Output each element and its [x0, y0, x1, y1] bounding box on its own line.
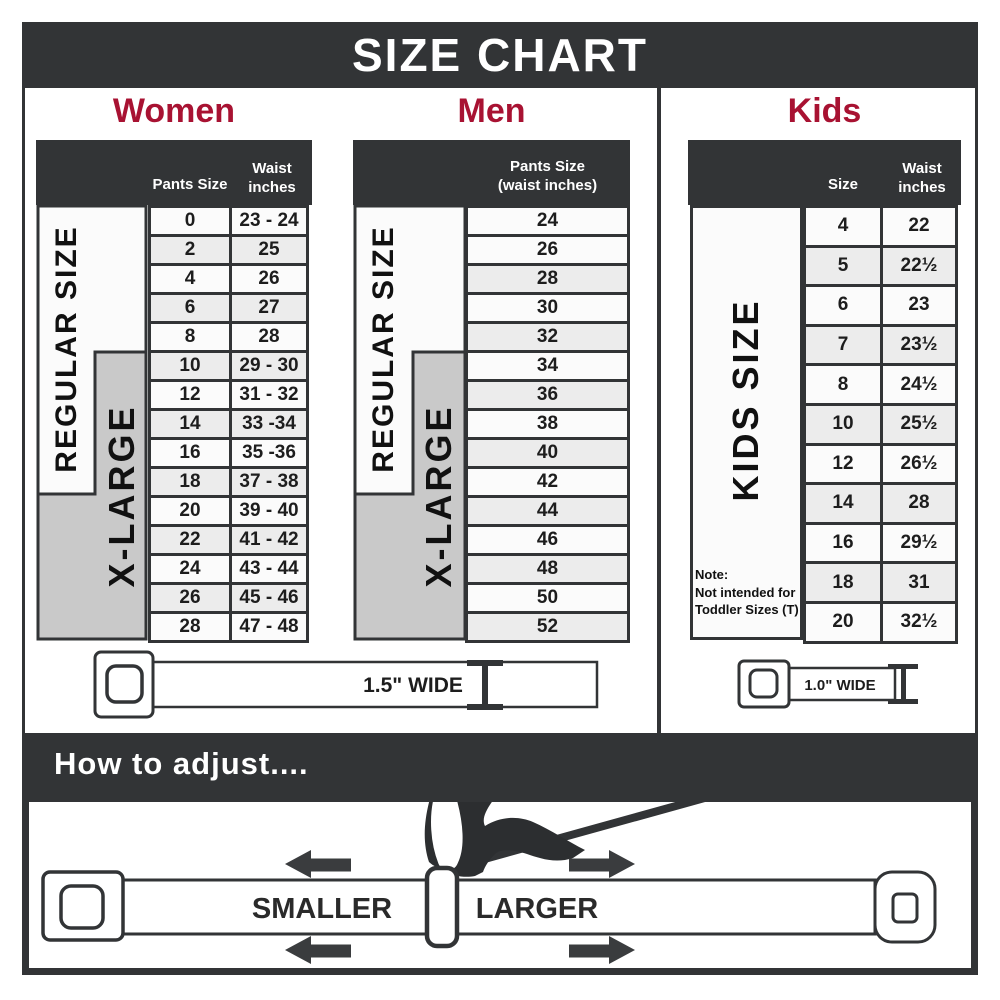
- women-pants-size-cell: 16: [148, 437, 232, 469]
- men-table: 24 26 28 30 32 34 36: [465, 205, 630, 643]
- kids-waist-cell: 22: [880, 205, 958, 248]
- kids-size-cell: 16: [803, 522, 883, 565]
- women-table-row: 24 43 - 44: [148, 553, 312, 585]
- men-table-row: 24: [465, 205, 630, 237]
- men-section-title: Men: [353, 92, 630, 134]
- arrow-left-icon: [285, 850, 351, 878]
- kids-table-row: 7 23½: [803, 324, 961, 367]
- men-pants-size-cell: 36: [465, 379, 630, 411]
- kids-waist-cell: 28: [880, 482, 958, 525]
- women-waist-cell: 43 - 44: [229, 553, 309, 585]
- kids-belt-illustration: 1.0" WIDE: [735, 657, 930, 713]
- men-table-row: 30: [465, 292, 630, 324]
- kids-waist-cell: 32½: [880, 601, 958, 644]
- kids-size-cell: 6: [803, 284, 883, 327]
- kids-note: Note: Not intended for Toddler Sizes (T): [695, 566, 801, 619]
- men-table-row: 34: [465, 350, 630, 382]
- kids-col-size: Size: [803, 176, 883, 195]
- kids-size-cell: 5: [803, 245, 883, 288]
- women-waist-cell: 35 -36: [229, 437, 309, 469]
- women-pants-size-cell: 2: [148, 234, 232, 266]
- men-pants-size-cell: 28: [465, 263, 630, 295]
- arrow-right-icon: [569, 850, 635, 878]
- men-pants-size-cell: 48: [465, 553, 630, 585]
- women-pants-size-cell: 24: [148, 553, 232, 585]
- men-pants-size-cell: 52: [465, 611, 630, 643]
- how-to-adjust-band: How to adjust....: [22, 733, 978, 795]
- kids-belt-width-label: 1.0" WIDE: [804, 677, 875, 694]
- women-pants-size-cell: 18: [148, 466, 232, 498]
- section-divider: [657, 88, 661, 733]
- larger-label: LARGER: [476, 893, 599, 925]
- women-waist-cell: 41 - 42: [229, 524, 309, 556]
- men-table-row: 48: [465, 553, 630, 585]
- men-pants-size-cell: 50: [465, 582, 630, 614]
- men-xlarge-label: X-LARGE: [421, 346, 457, 646]
- kids-waist-cell: 29½: [880, 522, 958, 565]
- kids-size-cell: 12: [803, 443, 883, 486]
- kids-waist-cell: 24½: [880, 363, 958, 406]
- adult-belt-illustration: 1.5" WIDE: [90, 648, 610, 726]
- women-waist-cell: 26: [229, 263, 309, 295]
- women-pants-size-cell: 6: [148, 292, 232, 324]
- kids-section-title: Kids: [688, 92, 961, 134]
- men-col-pants-size: Pants Size (waist inches): [465, 158, 630, 196]
- women-table-row: 4 26: [148, 263, 312, 295]
- women-table-row: 28 47 - 48: [148, 611, 312, 643]
- women-waist-cell: 45 - 46: [229, 582, 309, 614]
- men-table-row: 28: [465, 263, 630, 295]
- women-table-row: 0 23 - 24: [148, 205, 312, 237]
- women-table-row: 14 33 -34: [148, 408, 312, 440]
- women-waist-cell: 33 -34: [229, 408, 309, 440]
- women-table-row: 2 25: [148, 234, 312, 266]
- women-waist-cell: 28: [229, 321, 309, 353]
- kids-col-waist: Waist inches: [883, 160, 961, 198]
- women-pants-size-cell: 22: [148, 524, 232, 556]
- men-pants-size-cell: 44: [465, 495, 630, 527]
- women-waist-cell: 47 - 48: [229, 611, 309, 643]
- kids-waist-cell: 25½: [880, 403, 958, 446]
- women-pants-size-cell: 10: [148, 350, 232, 382]
- women-pants-size-cell: 14: [148, 408, 232, 440]
- kids-table-row: 18 31: [803, 561, 961, 604]
- men-pants-size-cell: 40: [465, 437, 630, 469]
- men-pants-size-cell: 26: [465, 234, 630, 266]
- kids-size-cell: 18: [803, 561, 883, 604]
- title-banner: SIZE CHART: [22, 22, 978, 88]
- women-waist-cell: 39 - 40: [229, 495, 309, 527]
- adjust-illustration: SMALLER LARGER: [29, 802, 971, 968]
- kids-table-row: 20 32½: [803, 601, 961, 644]
- kids-size-cell: 4: [803, 205, 883, 248]
- page-title: SIZE CHART: [352, 28, 648, 82]
- adult-belt-width-label: 1.5" WIDE: [363, 674, 463, 697]
- women-table-row: 10 29 - 30: [148, 350, 312, 382]
- size-chart-infographic: SIZE CHART Women Men Kids Pants Size Wai…: [0, 0, 1000, 1000]
- women-waist-cell: 29 - 30: [229, 350, 309, 382]
- men-table-row: 44: [465, 495, 630, 527]
- men-table-row: 46: [465, 524, 630, 556]
- women-table-row: 20 39 - 40: [148, 495, 312, 527]
- women-table-row: 6 27: [148, 292, 312, 324]
- women-pants-size-cell: 8: [148, 321, 232, 353]
- kids-size-label: KIDS SIZE: [728, 250, 764, 550]
- kids-waist-cell: 31: [880, 561, 958, 604]
- women-section-title: Women: [36, 92, 312, 134]
- women-pants-size-cell: 28: [148, 611, 232, 643]
- men-pants-size-cell: 38: [465, 408, 630, 440]
- kids-table-row: 12 26½: [803, 443, 961, 486]
- women-pants-size-cell: 12: [148, 379, 232, 411]
- kids-table-row: 8 24½: [803, 363, 961, 406]
- women-waist-cell: 37 - 38: [229, 466, 309, 498]
- women-table-row: 16 35 -36: [148, 437, 312, 469]
- arrow-right-icon: [569, 936, 635, 964]
- men-pants-size-cell: 34: [465, 350, 630, 382]
- women-waist-cell: 27: [229, 292, 309, 324]
- men-pants-size-cell: 46: [465, 524, 630, 556]
- kids-size-cell: 14: [803, 482, 883, 525]
- kids-size-cell: 7: [803, 324, 883, 367]
- kids-table-row: 16 29½: [803, 522, 961, 565]
- kids-table-row: 5 22½: [803, 245, 961, 288]
- adjust-belt-end: [875, 872, 935, 942]
- women-pants-size-cell: 20: [148, 495, 232, 527]
- men-table-row: 42: [465, 466, 630, 498]
- women-waist-cell: 31 - 32: [229, 379, 309, 411]
- arrow-left-icon: [285, 936, 351, 964]
- women-table-row: 18 37 - 38: [148, 466, 312, 498]
- men-table-row: 50: [465, 582, 630, 614]
- women-col-pants-size: Pants Size: [148, 176, 232, 195]
- kids-table-row: 10 25½: [803, 403, 961, 446]
- kids-waist-cell: 26½: [880, 443, 958, 486]
- finger-icon: [430, 802, 465, 872]
- women-waist-cell: 23 - 24: [229, 205, 309, 237]
- kids-size-cell: 8: [803, 363, 883, 406]
- women-table: 0 23 - 24 2 25 4 26 6 27 8 28: [148, 205, 312, 643]
- women-pants-size-cell: 0: [148, 205, 232, 237]
- men-table-row: 40: [465, 437, 630, 469]
- smaller-label: SMALLER: [252, 893, 392, 925]
- women-xlarge-label: X-LARGE: [104, 346, 140, 646]
- kids-waist-cell: 23½: [880, 324, 958, 367]
- kids-table-row: 4 22: [803, 205, 961, 248]
- women-waist-cell: 25: [229, 234, 309, 266]
- women-regular-size-label: REGULAR SIZE: [49, 199, 85, 499]
- women-pants-size-cell: 4: [148, 263, 232, 295]
- kids-waist-cell: 23: [880, 284, 958, 327]
- men-table-row: 32: [465, 321, 630, 353]
- women-table-row: 8 28: [148, 321, 312, 353]
- women-table-row: 26 45 - 46: [148, 582, 312, 614]
- men-table-row: 52: [465, 611, 630, 643]
- kids-waist-cell: 22½: [880, 245, 958, 288]
- how-to-adjust-title: How to adjust....: [54, 746, 309, 782]
- adjust-belt-buckle: [43, 872, 123, 940]
- kids-size-cell: 10: [803, 403, 883, 446]
- men-pants-size-cell: 32: [465, 321, 630, 353]
- women-table-row: 12 31 - 32: [148, 379, 312, 411]
- women-pants-size-cell: 26: [148, 582, 232, 614]
- men-pants-size-cell: 42: [465, 466, 630, 498]
- kids-table: 4 22 5 22½ 6 23 7 23½ 8 24½: [803, 205, 961, 644]
- women-table-row: 22 41 - 42: [148, 524, 312, 556]
- men-regular-size-label: REGULAR SIZE: [366, 199, 402, 499]
- adjust-slider: [427, 868, 457, 946]
- men-table-row: 26: [465, 234, 630, 266]
- men-table-row: 36: [465, 379, 630, 411]
- kids-table-row: 14 28: [803, 482, 961, 525]
- kids-table-row: 6 23: [803, 284, 961, 327]
- men-pants-size-cell: 24: [465, 205, 630, 237]
- men-pants-size-cell: 30: [465, 292, 630, 324]
- women-col-waist: Waist inches: [232, 160, 312, 198]
- kids-size-cell: 20: [803, 601, 883, 644]
- men-table-row: 38: [465, 408, 630, 440]
